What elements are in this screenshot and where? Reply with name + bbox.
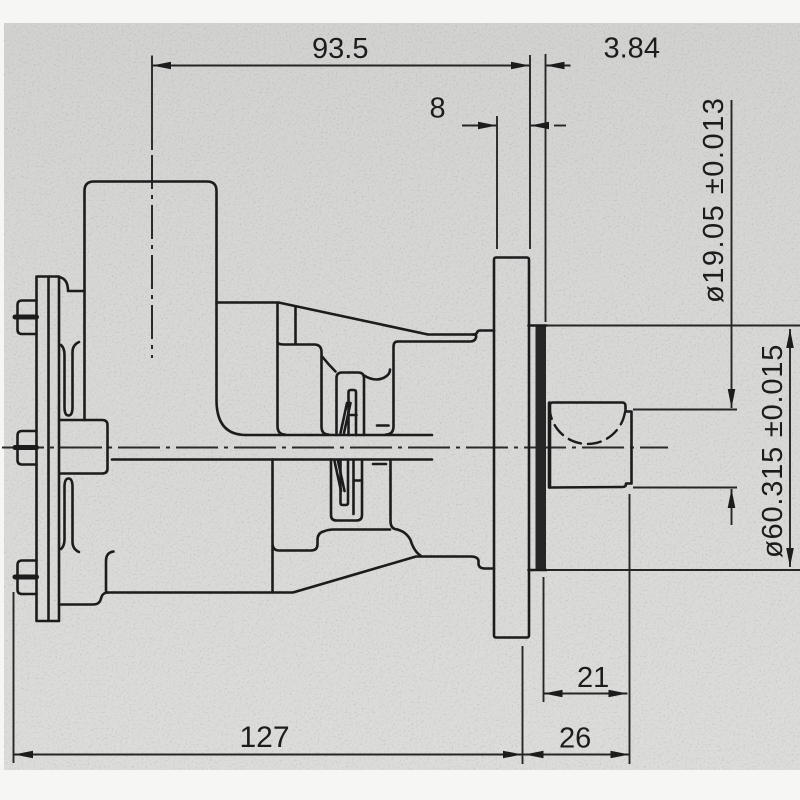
svg-text:127: 127 bbox=[240, 721, 290, 754]
svg-text:93.5: 93.5 bbox=[312, 33, 368, 65]
svg-text:ø60.315 ±0.015: ø60.315 ±0.015 bbox=[757, 344, 789, 558]
svg-text:ø19.05 ±0.013: ø19.05 ±0.013 bbox=[698, 97, 730, 303]
svg-text:8: 8 bbox=[430, 93, 446, 125]
svg-text:26: 26 bbox=[559, 723, 591, 755]
svg-text:3.84: 3.84 bbox=[604, 33, 660, 65]
svg-text:21: 21 bbox=[577, 662, 609, 694]
